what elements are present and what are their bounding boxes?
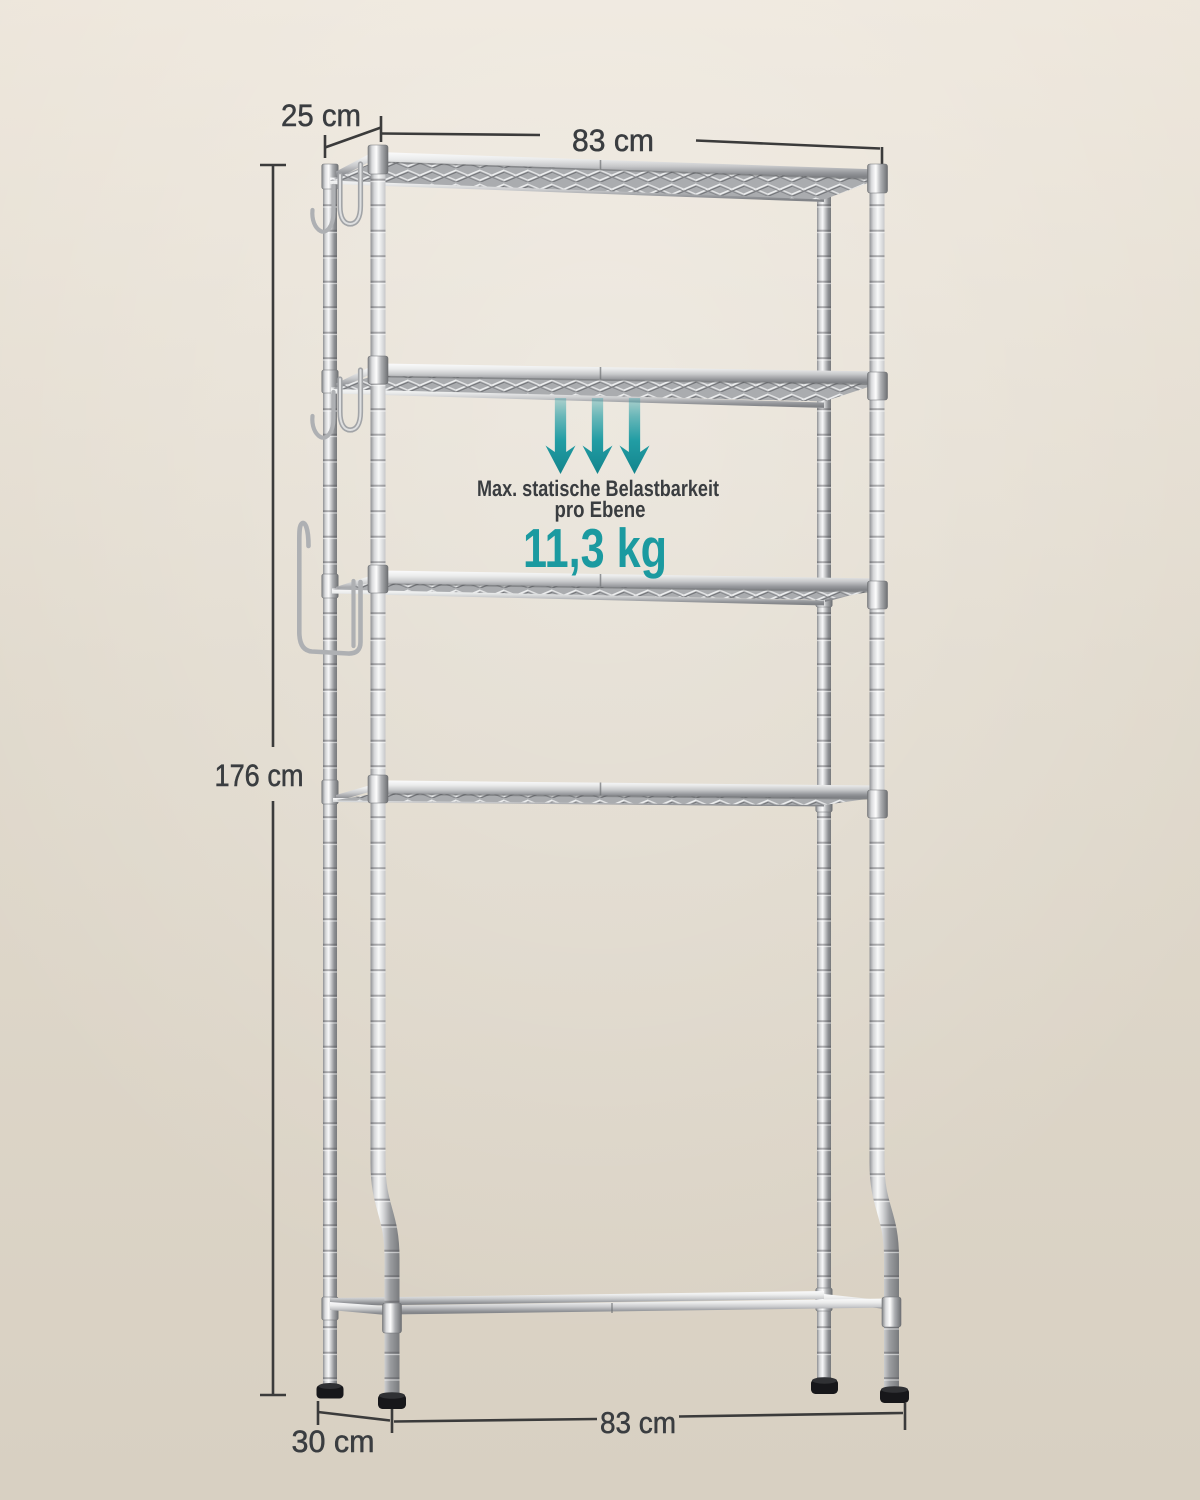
- svg-text:11,3 kg: 11,3 kg: [523, 517, 667, 579]
- svg-text:83 cm: 83 cm: [572, 123, 654, 158]
- svg-text:30 cm: 30 cm: [292, 1424, 375, 1459]
- svg-text:83 cm: 83 cm: [600, 1407, 676, 1440]
- svg-text:176 cm: 176 cm: [215, 758, 304, 793]
- svg-text:25 cm: 25 cm: [281, 98, 361, 133]
